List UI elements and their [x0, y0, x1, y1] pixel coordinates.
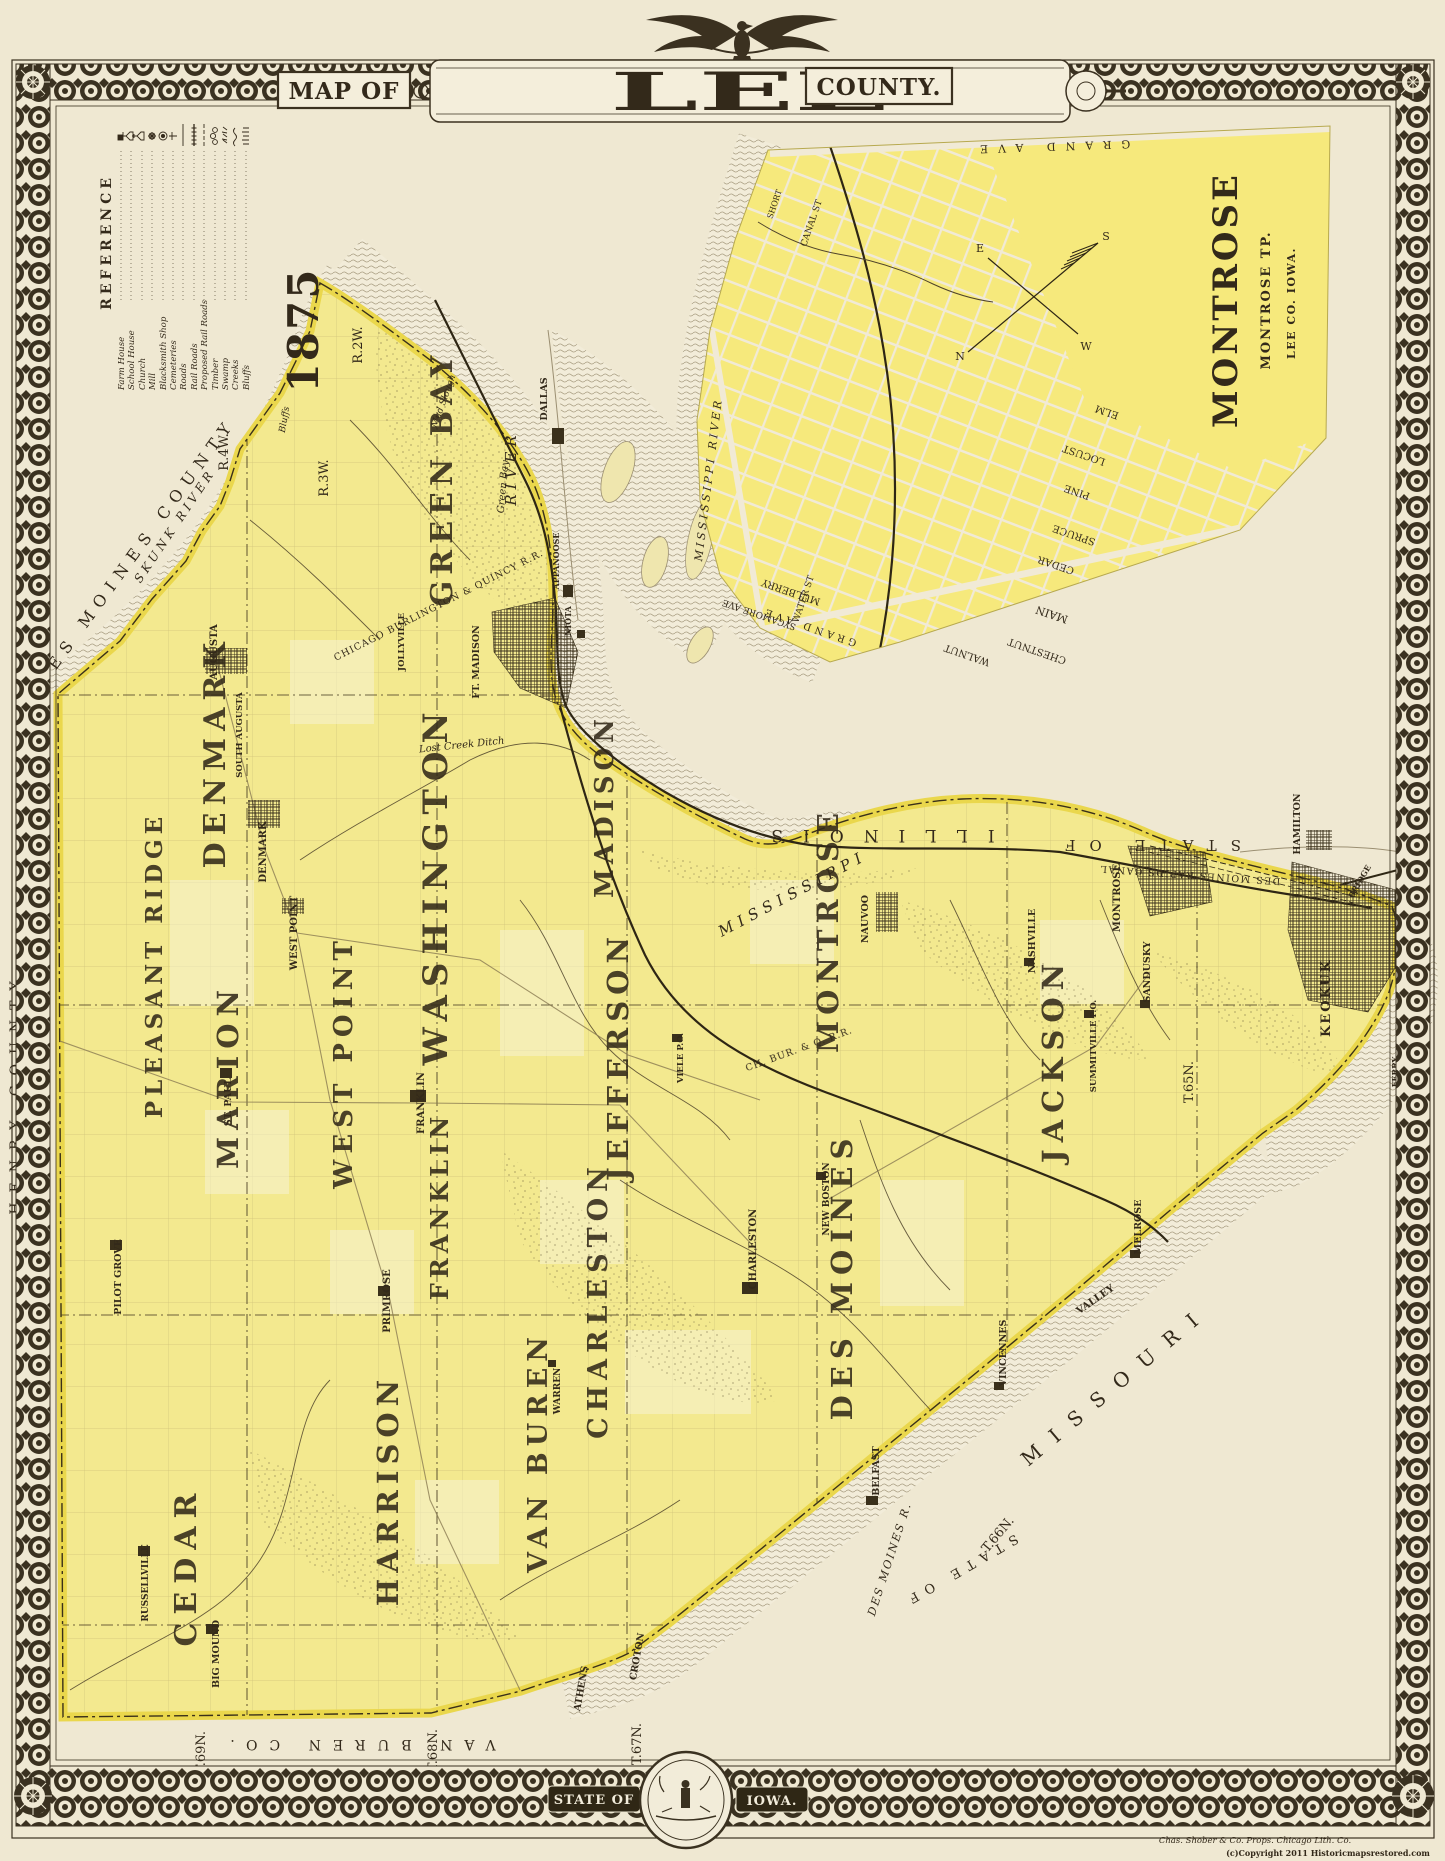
ref-swamp: Swamp [221, 357, 231, 390]
town-sandusky: SANDUSKY [1142, 941, 1153, 1002]
town-melrose: MELROSE [1133, 1200, 1144, 1255]
inset-title: MONTROSE [1206, 172, 1246, 428]
inset-subtitle-co: LEE CO. IOWA. [1285, 247, 1298, 359]
town-primrose: PRIMROSE [382, 1269, 393, 1333]
farmhouse-icon [118, 135, 123, 140]
compass-n: N [955, 350, 965, 363]
town-pilot-grove: PILOT GROVE [113, 1239, 124, 1315]
ref-bluffs: Bluffs [242, 364, 252, 391]
reference-title: REFERENCE [99, 174, 115, 310]
township-pleasant-ridge: PLEASANT RIDGE [141, 812, 168, 1118]
map-year: 1875 [279, 268, 328, 393]
town-franklin: FRANKLIN [416, 1072, 427, 1134]
town-dallas: DALLAS [539, 377, 550, 420]
tier-t65n: T.65N. [1182, 1061, 1197, 1103]
town-st-paul: ST. PAUL [223, 1078, 234, 1126]
town-hamilton: HAMILTON [1292, 793, 1303, 855]
compass-w: W [1080, 340, 1092, 353]
town-warren: WARREN [553, 1368, 563, 1416]
copyright-notice: (c)Copyright 2011 Historicmapsrestored.c… [1226, 1848, 1430, 1858]
lithographer-credit: Chas. Shober & Co. Props. Chicago Lith. … [1159, 1836, 1351, 1846]
ref-roads: Roads [179, 363, 189, 391]
town-denmark: DENMARK [258, 821, 269, 883]
compass-e: E [976, 242, 984, 255]
banner-iowa: IOWA. [747, 1794, 798, 1809]
tier-t67n: T.67N. [630, 1723, 645, 1765]
township-franklin: FRANKLIN [425, 1112, 454, 1300]
range-r3w: R.3W. [317, 459, 332, 496]
ref-farm-house: Farm House [117, 337, 127, 391]
town-charleston: CHARLESTON [748, 1209, 759, 1290]
town-summitville: SUMMITVILLE P.O. [1089, 1000, 1099, 1092]
inset-subtitle-tp: MONTROSE TP. [1259, 230, 1274, 369]
title-suffix-banner: COUNTY. [806, 68, 952, 104]
township-jefferson: JEFFERSON [601, 931, 635, 1184]
label-van-buren-co: VAN BUREN CO. [218, 1736, 496, 1752]
ref-proposed-rr: Proposed Rail Roads [200, 299, 210, 391]
ref-timber: Timber [211, 358, 221, 390]
town-vincennes: VINCENNES [998, 1319, 1009, 1387]
town-nauvoo: NAUVOO [860, 895, 871, 943]
town-belfast: BELFAST [871, 1446, 882, 1495]
township-harrison: HARRISON [371, 1374, 405, 1606]
town-augusta: AUGUSTA [209, 624, 220, 681]
town-russellville: RUSSELLVILLE [141, 1544, 151, 1621]
township-cedar: CEDAR [169, 1486, 204, 1647]
banner-state-of: STATE OF [554, 1793, 634, 1808]
town-viele: VIELE P.O. [676, 1033, 686, 1084]
title-prefix-banner: MAP OF [278, 72, 410, 108]
township-washington: WASHINGTON [416, 704, 456, 1066]
township-madison: MADISON [590, 714, 620, 898]
township-green-bay: GREEN BAY [425, 350, 460, 607]
township-marion: MARION [211, 983, 245, 1169]
ref-cemeteries: Cemeteries [169, 340, 179, 390]
label-state-of-illinois: STATE OF [1051, 836, 1241, 854]
range-r2w: R.2W. [351, 326, 366, 363]
ref-church: Church [138, 358, 148, 390]
township-west-point: WEST POINT [329, 935, 359, 1190]
town-new-boston: NEW BOSTON [822, 1162, 832, 1235]
ref-mill: Mill [148, 373, 158, 391]
town-south-augusta: SOUTH AUGUSTA [235, 692, 245, 778]
title-prefix: MAP OF [289, 78, 400, 105]
township-van-buren: VAN BUREN [523, 1331, 554, 1574]
title-suffix: COUNTY. [817, 74, 942, 101]
town-big-mound: BIG MOUND [211, 1620, 222, 1688]
township-charleston: CHARLESTON [583, 1161, 614, 1439]
lee-county-map: GREEN BAY WASHINGTON DENMARK MADISON PLE… [0, 0, 1445, 1861]
town-keokuk: KEOKUK [1319, 959, 1334, 1037]
map-sheet: GREEN BAY WASHINGTON DENMARK MADISON PLE… [0, 0, 1445, 1861]
banner-medallion [640, 1752, 732, 1848]
town-west-point: WEST POINT [289, 895, 300, 971]
ref-blacksmith: Blacksmith Shop [159, 316, 169, 391]
town-ft-madison: FT. MADISON [471, 625, 482, 699]
ref-creeks: Creeks [231, 359, 241, 390]
town-niota: NIOTA [563, 605, 573, 636]
ref-rail-roads: Rail Roads [190, 343, 200, 391]
compass-s: S [1102, 230, 1110, 243]
tier-t68n: T.68N. [426, 1729, 441, 1771]
range-r4w: R.4W. [217, 433, 232, 470]
town-nashville: NASHVILLE [1027, 909, 1038, 973]
ref-school-house: School House [127, 330, 137, 390]
township-jackson: JACKSON [1036, 957, 1070, 1166]
town-appanoose: APPANOOSE [551, 533, 561, 591]
label-illinois: ILLINOIS [751, 825, 994, 845]
